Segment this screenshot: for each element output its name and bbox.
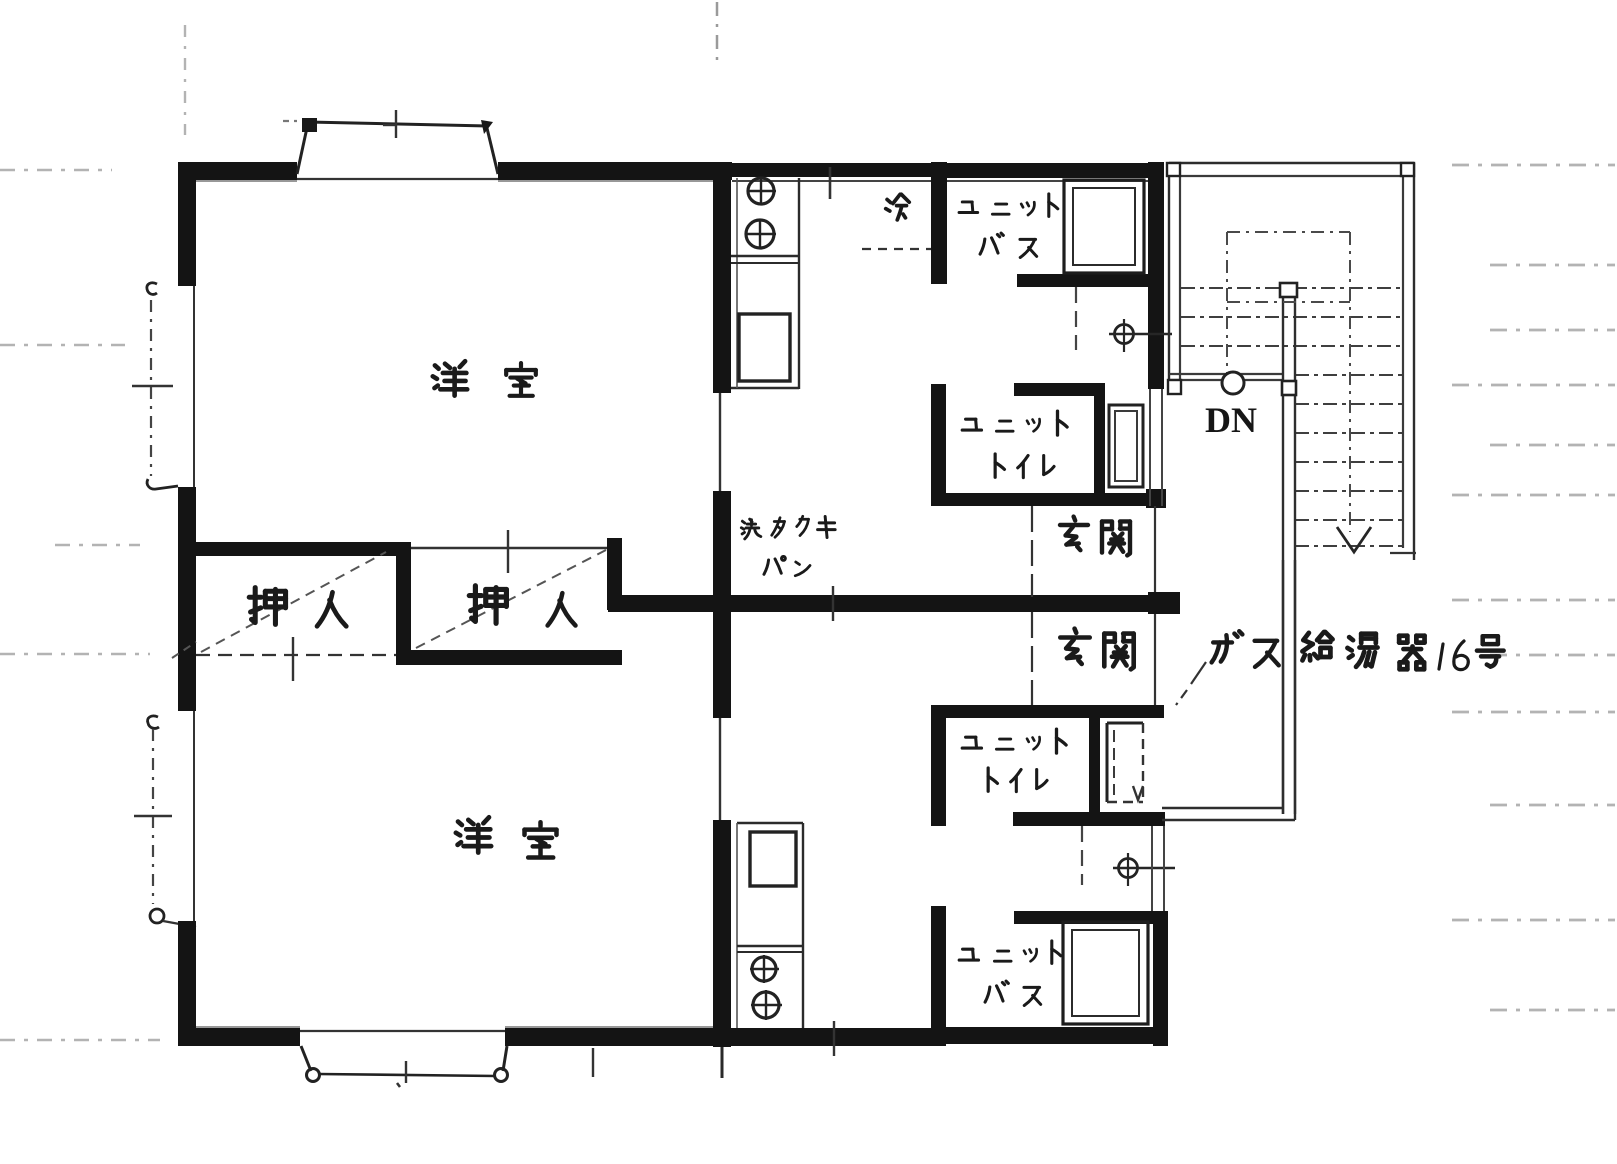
- svg-text:DN: DN: [1205, 400, 1257, 440]
